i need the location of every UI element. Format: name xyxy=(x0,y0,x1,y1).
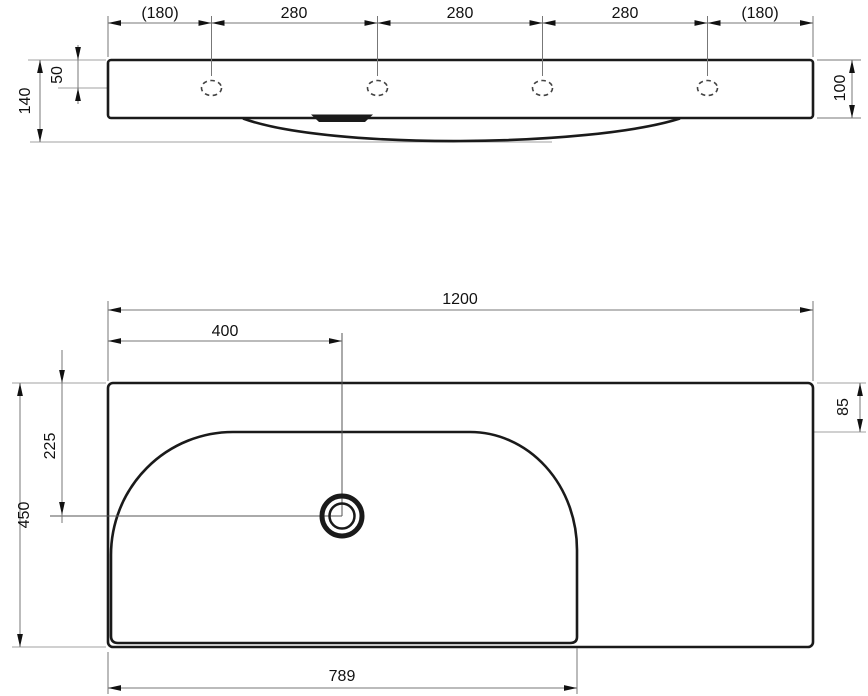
arrowhead xyxy=(199,20,212,26)
technical-drawing: (180) 280 280 280 (180) 50 140 100 xyxy=(0,0,868,696)
arrowhead xyxy=(800,307,813,313)
arrowhead xyxy=(75,88,81,101)
dim-label-hole-offset: 50 xyxy=(49,66,66,84)
arrowhead xyxy=(800,20,813,26)
dim-label-right-spacing: (180) xyxy=(741,5,778,22)
arrowhead xyxy=(37,60,43,73)
arrowhead xyxy=(59,502,65,515)
arrowhead xyxy=(108,685,121,691)
arrowhead xyxy=(857,383,863,396)
arrowhead xyxy=(108,338,121,344)
arrowhead xyxy=(378,20,391,26)
plan-view: 1200 400 85 225 450 789 xyxy=(12,291,866,694)
arrowhead xyxy=(530,20,543,26)
front-view: (180) 280 280 280 (180) 50 140 100 xyxy=(17,5,861,142)
dim-label-drain-from-back: 225 xyxy=(42,433,59,460)
arrowhead xyxy=(564,685,577,691)
arrowhead xyxy=(59,370,65,383)
dim-label-body-height: 100 xyxy=(832,75,849,102)
dim-label-overall-width: 1200 xyxy=(442,291,478,308)
dim-label-drain-from-left: 400 xyxy=(212,323,239,340)
dim-label-rim-to-bowl: 85 xyxy=(835,398,852,416)
arrowhead xyxy=(329,338,342,344)
arrowhead xyxy=(849,60,855,73)
basin-plan-outline xyxy=(108,383,813,647)
dim-label-left-spacing: (180) xyxy=(141,5,178,22)
arrowhead xyxy=(543,20,556,26)
arrowhead xyxy=(17,634,23,647)
arrowhead xyxy=(108,307,121,313)
arrowhead xyxy=(75,47,81,60)
arrowhead xyxy=(108,20,121,26)
dim-label-spacing-1: 280 xyxy=(281,5,308,22)
dim-label-total-height: 140 xyxy=(17,88,34,115)
arrowhead xyxy=(695,20,708,26)
drain-outlet-front xyxy=(311,115,373,123)
arrowhead xyxy=(849,105,855,118)
dim-label-overall-depth: 450 xyxy=(16,502,33,529)
bowl-profile-curve xyxy=(243,119,680,142)
arrowhead xyxy=(708,20,721,26)
arrowhead xyxy=(365,20,378,26)
dim-label-spacing-3: 280 xyxy=(612,5,639,22)
dim-label-spacing-2: 280 xyxy=(447,5,474,22)
arrowhead xyxy=(37,129,43,142)
arrowhead xyxy=(17,383,23,396)
dim-label-bowl-length: 789 xyxy=(329,668,356,685)
arrowhead xyxy=(857,419,863,432)
arrowhead xyxy=(212,20,225,26)
